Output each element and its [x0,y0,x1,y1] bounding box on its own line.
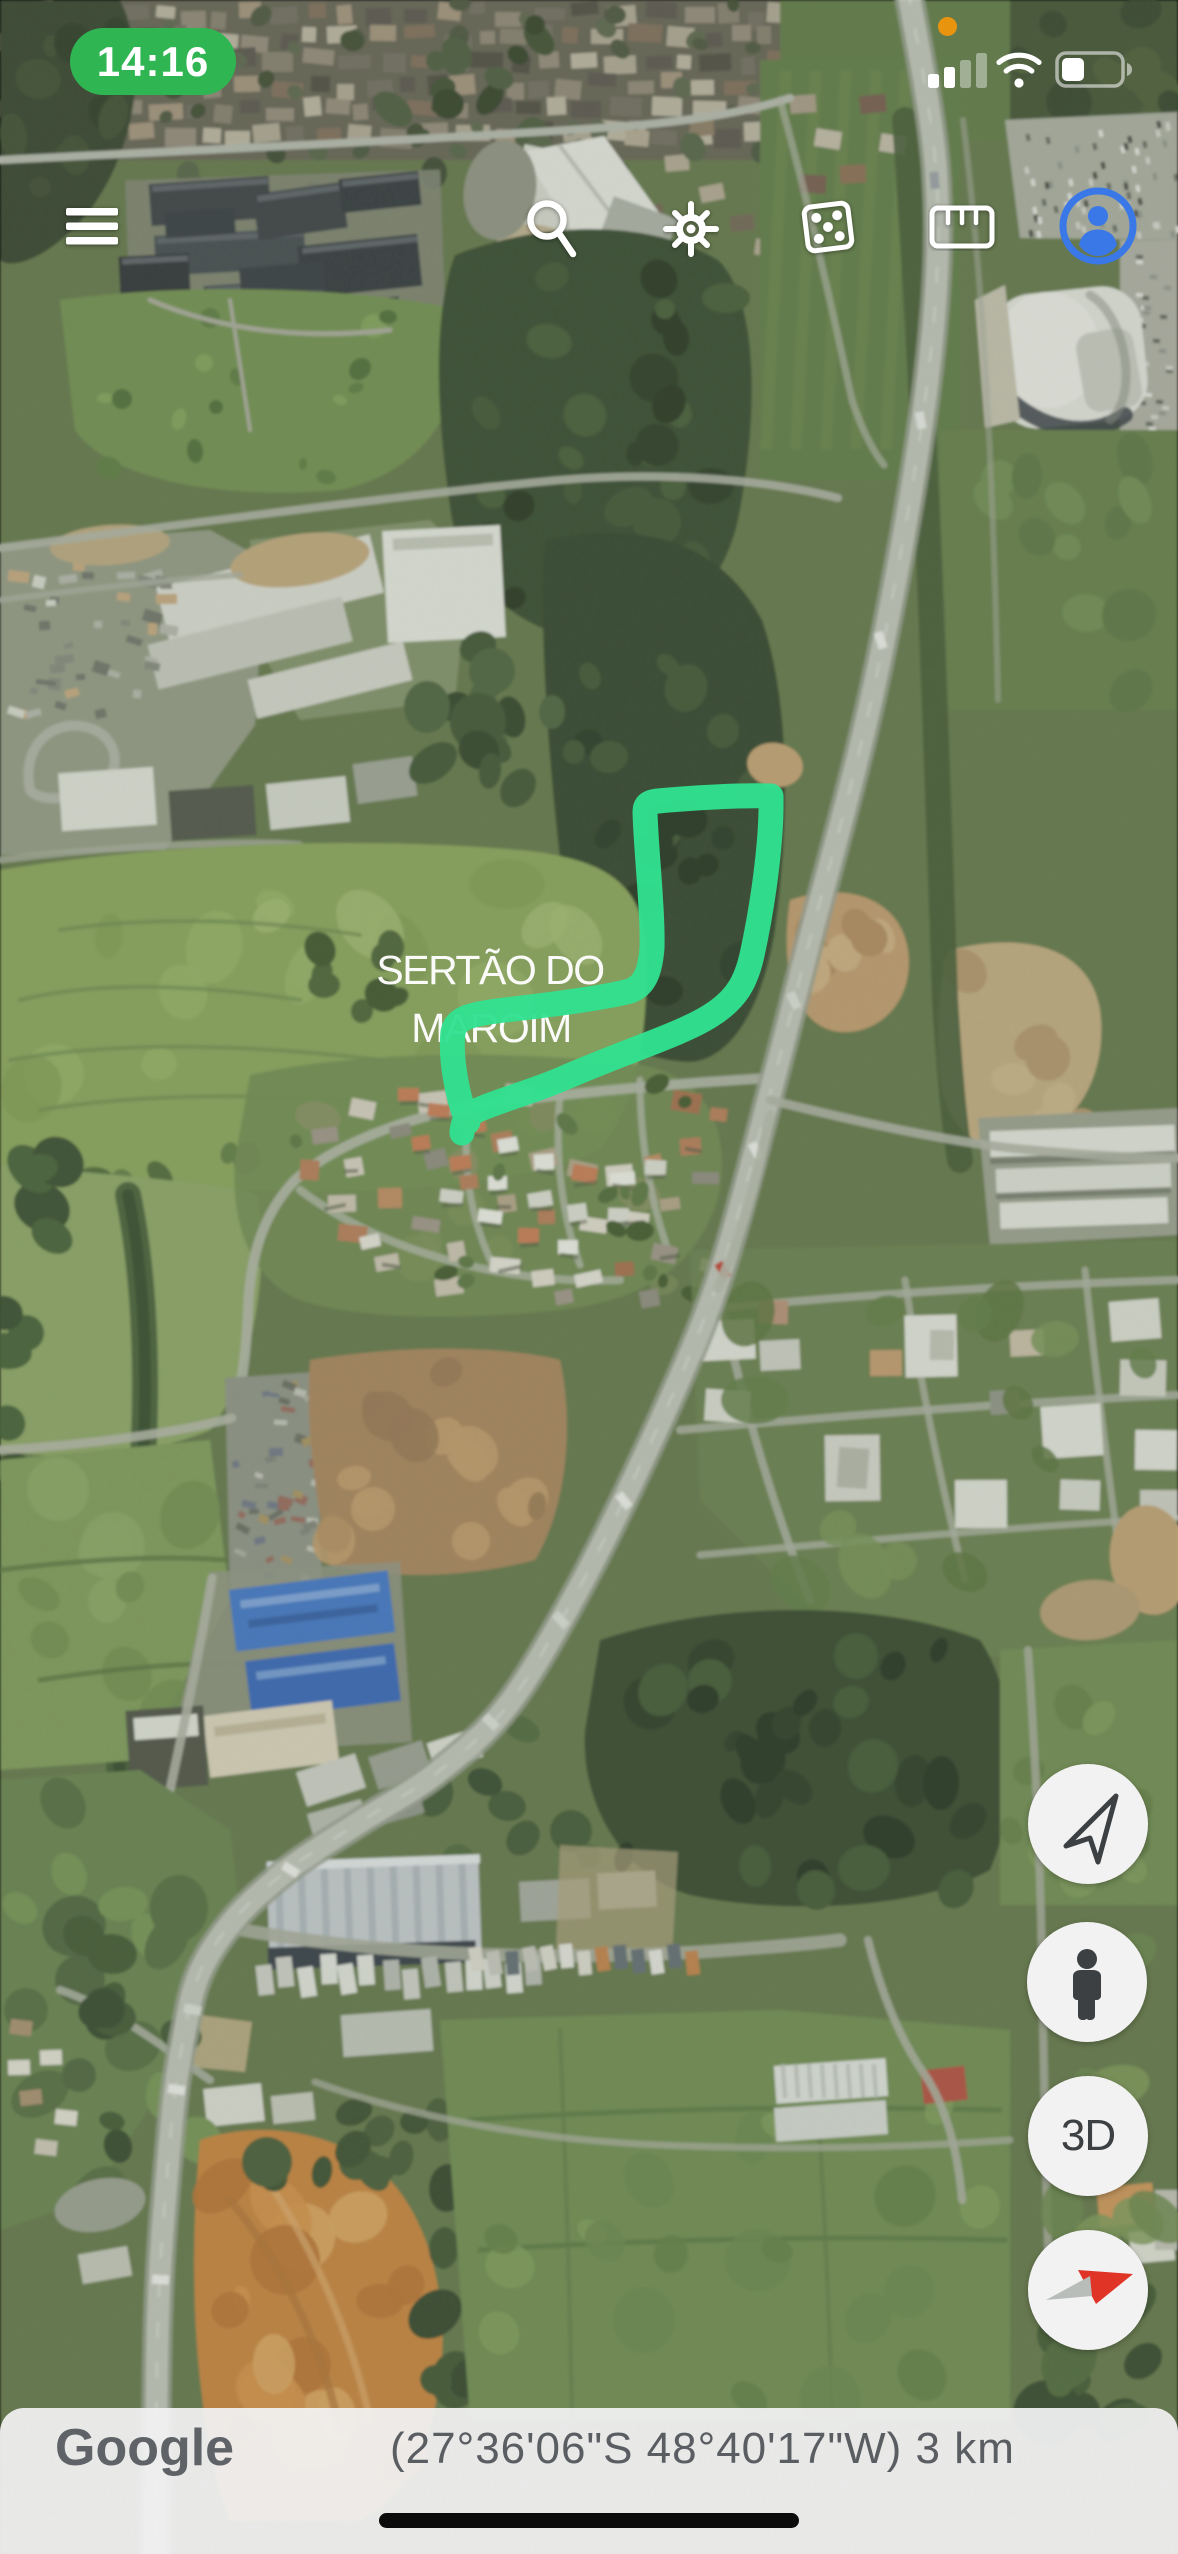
svg-text:SERTÃO DO: SERTÃO DO [376,947,603,993]
